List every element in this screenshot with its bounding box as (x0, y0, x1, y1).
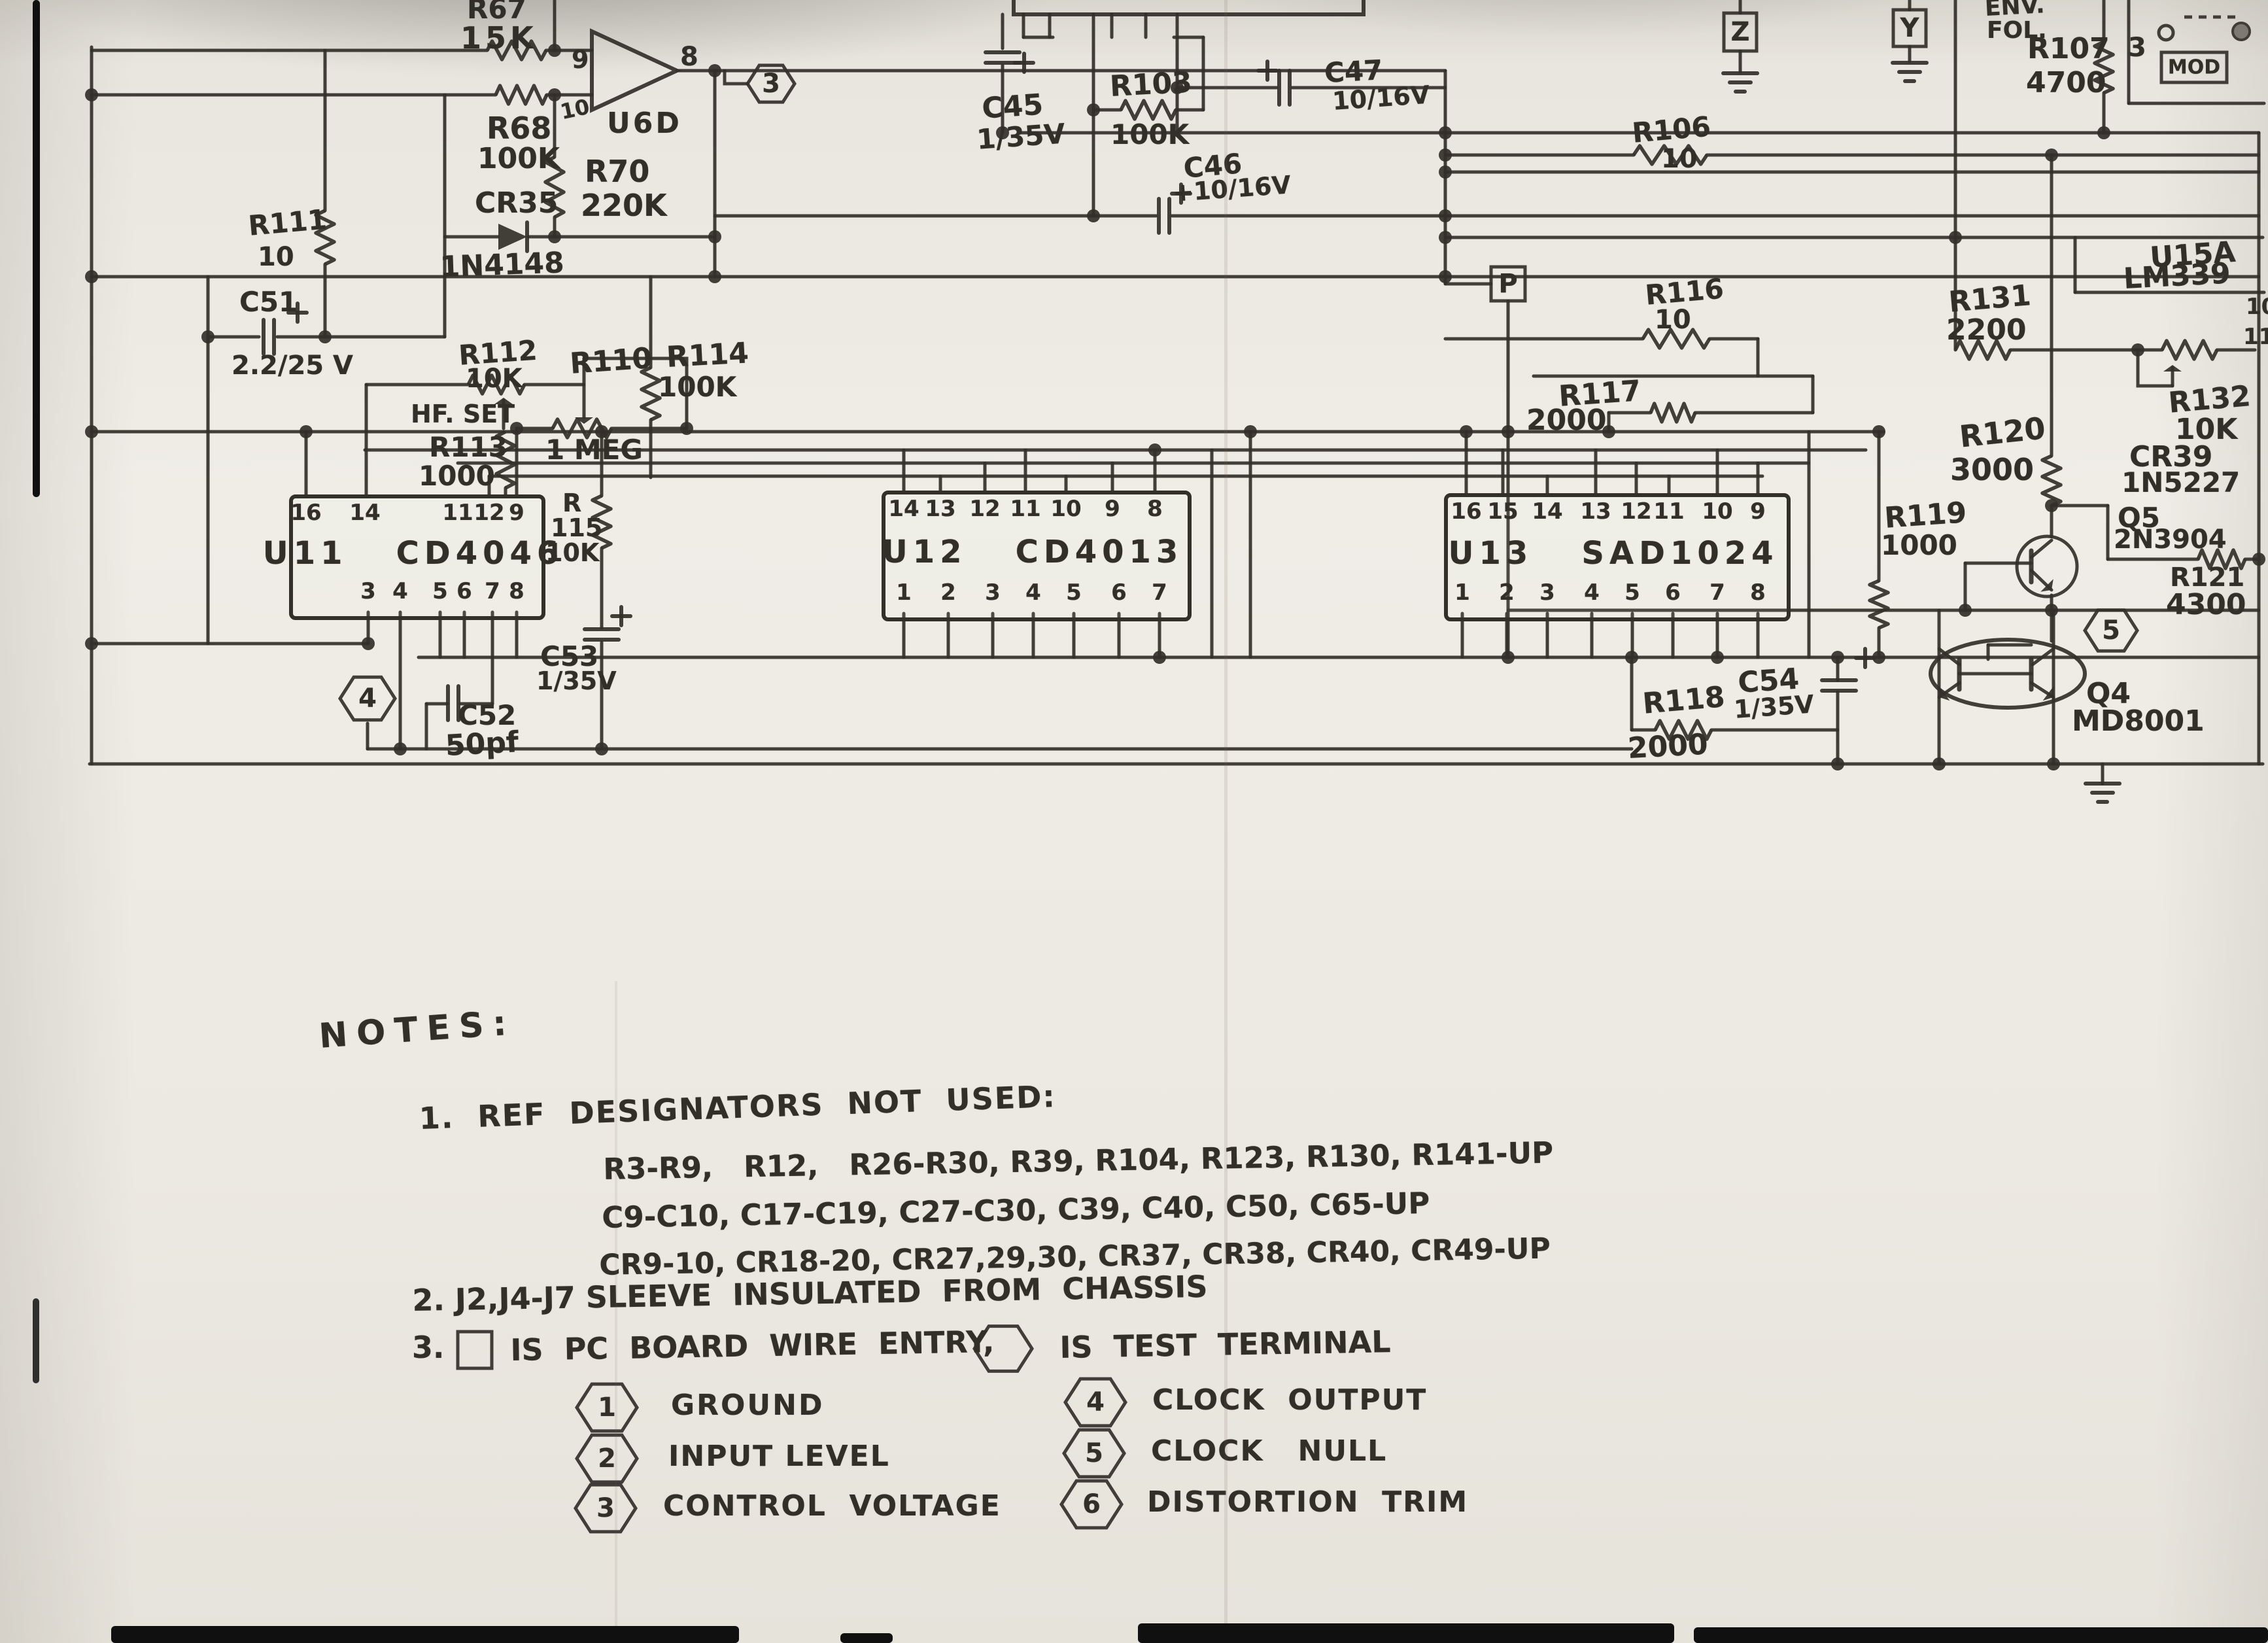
label-hf-set: HF. SET (411, 402, 515, 428)
label-r110: R110 (569, 343, 653, 379)
label-9: 9 (572, 47, 589, 73)
label-r106: R106 (1631, 112, 1711, 148)
test-terminal-2: 2 (598, 1444, 616, 1474)
ic-u13-pin-top-2: 14 (1532, 498, 1562, 525)
label-100k: 100K (477, 144, 560, 174)
label-2000: 2000 (1526, 406, 1606, 436)
label-r114: R114 (666, 338, 749, 373)
ic-u13-pin-top-0: 16 (1451, 498, 1481, 525)
ic-u12-pin-bottom-2: 3 (985, 579, 1001, 606)
label-1n5227: 1N5227 (2122, 468, 2240, 497)
label-r131: R131 (1948, 281, 2032, 318)
ic-u13-pin-bottom-0: 1 (1454, 579, 1470, 606)
ic-u13-pin-top-4: 12 (1621, 498, 1651, 525)
test-terminal-5: 5 (2102, 615, 2120, 646)
test-terminal-6: 6 (1082, 1489, 1101, 1519)
ic-u13-pin-bottom-4: 5 (1624, 579, 1640, 606)
scan-artifact-bottom-4 (1694, 1627, 2268, 1643)
label-10k: 10K (466, 365, 523, 392)
label-3: 3 (2128, 34, 2146, 61)
label-cr35: CR35 (475, 188, 558, 218)
label-8: 8 (680, 43, 698, 71)
label-1-35v: 1/35V (976, 120, 1066, 154)
label-100k: 100K (658, 373, 736, 402)
label-10: 10 (558, 96, 592, 124)
ic-u13-pin-top-1: 15 (1487, 498, 1518, 525)
ic-u11-pin-top-4: 9 (509, 500, 524, 526)
scan-artifact-left-bar-2 (33, 1298, 39, 1383)
label-10: 10 (1661, 145, 1698, 173)
ic-u13-name: U13 SAD1024 (1448, 535, 1778, 572)
label-u6d: U6D (607, 109, 682, 139)
label-3: 3. (412, 1332, 444, 1363)
label-2n3904: 2N3904 (2114, 526, 2227, 553)
label-1000: 1000 (1881, 531, 1957, 560)
label-r: R (562, 491, 581, 517)
label-ground: GROUND (671, 1391, 824, 1421)
label-is-pc-board-wire-entry: IS PC BOARD WIRE ENTRY, (510, 1326, 995, 1366)
test-terminal-3: 3 (596, 1493, 615, 1523)
test-terminal-3: 3 (762, 69, 780, 99)
label-input-level: INPUT LEVEL (668, 1442, 890, 1472)
ic-u12-pin-bottom-5: 6 (1111, 579, 1127, 606)
label-10: 10 (2246, 296, 2268, 319)
label-r68: R68 (487, 112, 551, 144)
label-r70: R70 (585, 156, 649, 187)
ic-u13-pin-bottom-1: 2 (1499, 579, 1515, 606)
ic-u12-pin-bottom-0: 1 (896, 579, 912, 606)
label-10: 10 (1655, 306, 1691, 334)
label-r120: R120 (1958, 412, 2047, 453)
ic-u12-pin-top-5: 9 (1105, 496, 1120, 522)
label-clock-null: CLOCK NULL (1151, 1436, 1387, 1466)
ic-u11-pin-bottom-1: 4 (392, 578, 408, 604)
ic-u13-pin-top-7: 9 (1750, 498, 1766, 525)
label-1-35v: 1/35V (1733, 691, 1815, 723)
ic-u12-pin-top-1: 13 (925, 496, 955, 522)
ic-u11-pin-top-0: 16 (290, 500, 321, 526)
ic-u13-pin-bottom-5: 6 (1665, 579, 1681, 606)
ic-u13-pin-top-3: 13 (1580, 498, 1611, 525)
test-terminal-5: 5 (1085, 1438, 1103, 1468)
ic-u11-pin-bottom-2: 5 (432, 578, 448, 604)
label-clock-output: CLOCK OUTPUT (1152, 1385, 1427, 1415)
scan-artifact-bottom-2 (840, 1633, 893, 1643)
label-c47: C47 (1324, 56, 1383, 88)
wire-entry-MOD: MOD (2168, 56, 2220, 79)
label-c51: C51 (239, 288, 298, 317)
test-terminal-4: 4 (1086, 1387, 1105, 1417)
ic-u12-pin-bottom-1: 2 (940, 579, 956, 606)
ic-u13-pin-bottom-2: 3 (1539, 579, 1555, 606)
label-2-2-25-v: 2.2/25 V (232, 352, 353, 379)
schematic-scan-page: U11 CD4046161411129345678U12 CD401314131… (0, 0, 2268, 1643)
label-4300: 4300 (2166, 590, 2246, 620)
ic-u12-pin-bottom-4: 5 (1066, 579, 1082, 606)
ic-u11-pin-bottom-3: 6 (456, 578, 472, 604)
ic-u12-pin-top-4: 10 (1050, 496, 1081, 522)
label-r121: R121 (2170, 564, 2244, 591)
ic-u11-pin-bottom-4: 7 (485, 578, 500, 604)
test-terminal-1: 1 (598, 1392, 616, 1423)
ic-u12-pin-top-2: 12 (969, 496, 1000, 522)
label-4700: 4700 (2026, 68, 2106, 98)
label-100k: 100K (1110, 120, 1189, 149)
label-1-meg: 1 MEG (545, 436, 643, 464)
label-r103: R103 (1109, 67, 1193, 102)
ic-u12-pin-top-0: 14 (888, 496, 919, 522)
label-11: 11 (2243, 326, 2268, 349)
label-3000: 3000 (1950, 454, 2034, 485)
wire-entry-P: P (1498, 269, 1517, 299)
label-1000: 1000 (419, 462, 495, 491)
ic-u11-pin-bottom-0: 3 (360, 578, 376, 604)
scan-artifact-left-bar (33, 0, 40, 497)
ic-u12-pin-top-3: 11 (1010, 496, 1040, 522)
ic-u12-pin-top-6: 8 (1147, 496, 1163, 522)
ic-u12-pin-bottom-6: 7 (1152, 579, 1167, 606)
label-1n4148: 1N4148 (439, 248, 564, 283)
ic-u11-pin-top-1: 14 (349, 500, 380, 526)
label-control-voltage: CONTROL VOLTAGE (663, 1491, 1001, 1521)
ic-u11-pin-bottom-5: 8 (509, 578, 524, 604)
label-lm339: LM339 (2123, 258, 2231, 294)
ic-u12-name: U12 CD4013 (882, 534, 1184, 570)
label-220k: 220K (581, 190, 667, 221)
test-terminal-4: 4 (358, 683, 377, 714)
label-2000: 2000 (1627, 730, 1709, 765)
label-distortion-trim: DISTORTION TRIM (1147, 1487, 1468, 1517)
label-2200: 2200 (1946, 315, 2026, 345)
label-1-35v: 1/35V (536, 668, 617, 695)
ic-u11-name: U11 CD4046 (263, 535, 564, 572)
ic-u12-pin-bottom-3: 4 (1025, 579, 1041, 606)
label-10: 10 (258, 243, 294, 271)
ic-u13-pin-bottom-3: 4 (1584, 579, 1600, 606)
ic-u13-pin-top-6: 10 (1702, 498, 1732, 525)
label-115: 115 (551, 515, 602, 542)
scan-artifact-bottom-3 (1138, 1623, 1674, 1643)
ic-u13-pin-bottom-7: 8 (1750, 579, 1766, 606)
ic-u11-pin-top-2: 11 (442, 500, 473, 526)
label-50pf: 50pf (445, 727, 519, 761)
label-10k: 10K (545, 540, 599, 566)
label-is-test-terminal: IS TEST TERMINAL (1059, 1326, 1391, 1363)
ic-u11-pin-top-3: 12 (473, 500, 504, 526)
label-r118: R118 (1641, 682, 1726, 719)
label-r113: R113 (429, 433, 507, 462)
wire-entry-Y: Y (1900, 13, 1919, 43)
label-md8001: MD8001 (2072, 706, 2205, 736)
ic-u13-pin-top-5: 11 (1653, 498, 1684, 525)
wire-entry-Z: Z (1730, 17, 1749, 47)
scan-artifact-bottom-1 (111, 1626, 739, 1643)
label-r119: R119 (1883, 498, 1968, 534)
label-r107: R107 (2027, 34, 2110, 64)
schematic-wiring (0, 0, 2268, 1643)
label-r111: R111 (247, 205, 328, 241)
label-15k: 15K (460, 22, 538, 54)
ic-u13-pin-bottom-6: 7 (1710, 579, 1725, 606)
